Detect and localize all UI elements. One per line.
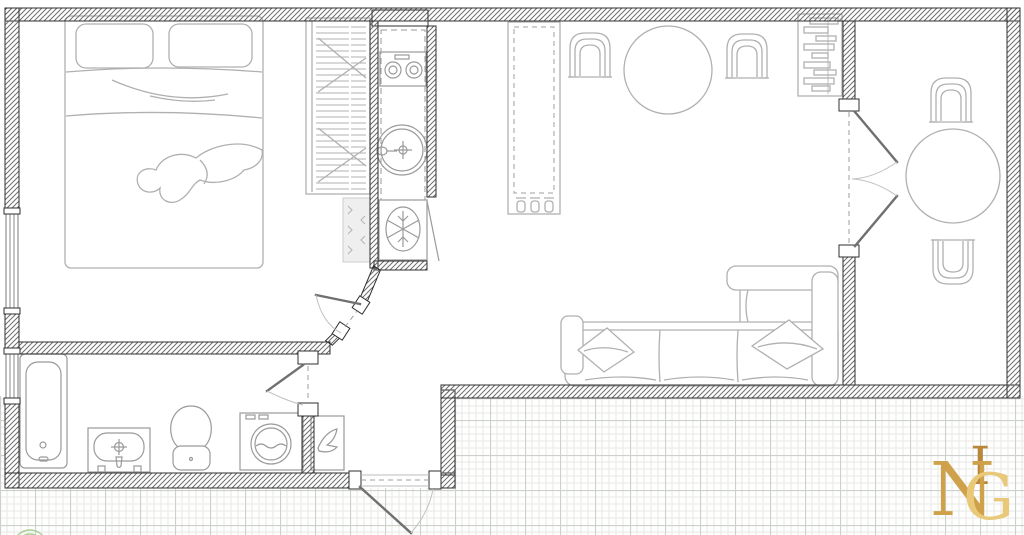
bedroom-bottom-wall: [19, 342, 330, 354]
window-icon: [4, 348, 20, 404]
right-wall: [1007, 8, 1020, 398]
divider-wall: [843, 21, 855, 101]
chair-icon: [725, 34, 769, 78]
living-room-bottom-wall: [441, 385, 1020, 398]
wardrobe-icon: [306, 18, 370, 194]
chair-icon: [931, 240, 975, 284]
window-icon: [4, 208, 20, 314]
tall-cabinet-icon: [508, 22, 560, 214]
floor-plan-canvas: I N G: [0, 0, 1024, 535]
left-wall: [5, 309, 19, 353]
washing-machine-icon: [240, 413, 303, 470]
floor-plan-drawing: [0, 0, 1024, 535]
kitchen-right-wall: [427, 26, 436, 197]
kitchen-bottom-wall: [374, 261, 427, 270]
duct-shaft-icon: [343, 198, 370, 262]
chair-icon: [929, 78, 973, 122]
toilet-icon: [171, 406, 212, 470]
round-table-icon: [906, 129, 1000, 223]
round-dining-table-icon: [624, 26, 712, 114]
shoe-cabinet-icon: [311, 416, 344, 470]
divider-wall: [843, 257, 855, 385]
shelf-unit-icon: [798, 14, 842, 96]
double-bed-icon: [65, 16, 263, 268]
bathroom-wall: [302, 416, 314, 473]
bottom-wall: [5, 473, 349, 488]
entry-side-wall: [441, 390, 455, 475]
chair-icon: [568, 33, 612, 77]
bathtub-icon: [20, 354, 67, 468]
washbasin-icon: [88, 428, 150, 472]
left-wall: [5, 8, 19, 213]
top-wall: [5, 8, 1020, 21]
kitchen-left-wall: [370, 21, 378, 268]
